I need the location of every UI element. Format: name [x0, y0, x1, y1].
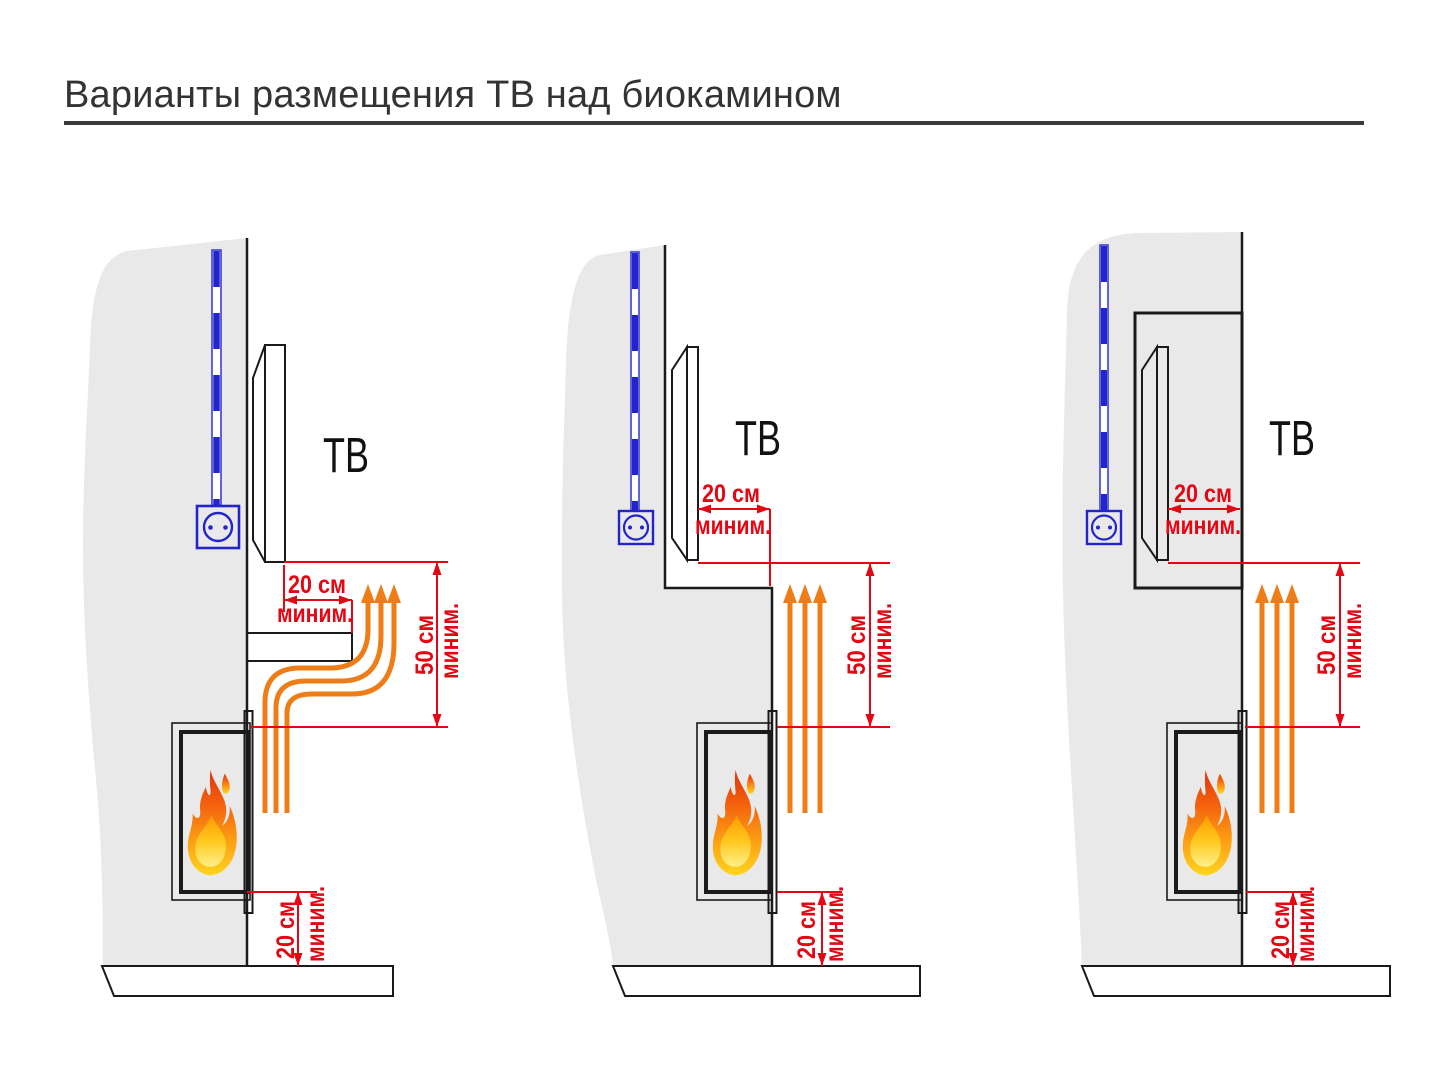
floor-slab [1082, 966, 1390, 996]
heat-clearance-dimension: 50 см миним. [250, 562, 464, 727]
power-cable [212, 250, 221, 506]
power-socket [1087, 511, 1121, 544]
tv-side-view [253, 345, 285, 562]
heat-arrowhead [1270, 584, 1284, 603]
tv-label: ТВ [735, 412, 781, 466]
dimension-qualifier: миним. [1339, 603, 1367, 679]
infographic-page: Варианты размещения ТВ над биокамином [0, 0, 1440, 1080]
power-cable [631, 252, 639, 511]
dimension-qualifier: миним. [821, 886, 849, 962]
socket-pin-hole [1096, 526, 1100, 530]
power-cable [1100, 245, 1108, 511]
arrowhead-up [433, 562, 442, 575]
socket-pin-hole [1108, 526, 1112, 530]
dimension-value: 20 см [1174, 480, 1232, 508]
heat-arrowhead [361, 584, 375, 603]
arrowhead-down [433, 714, 442, 727]
arrowhead-up [1336, 563, 1345, 576]
dimension-value: 20 см [272, 901, 300, 959]
dimension-value: 50 см [1313, 615, 1341, 675]
dimension-qualifier: миним. [277, 600, 353, 628]
heat-arrowhead [1285, 584, 1299, 603]
floor-clearance-dimension: 20 см миним. [777, 886, 849, 966]
dimension-value: 50 см [411, 615, 439, 675]
tv-panel [265, 345, 285, 562]
heat-arrows [783, 584, 827, 813]
socket-pin-hole [208, 525, 213, 530]
tv-label: ТВ [1269, 412, 1315, 466]
tv-clearance-dimension: 20 см миним. [277, 565, 353, 633]
diagram-variant-1-shelf: ТВ [83, 238, 464, 996]
arrowhead-up [866, 563, 875, 576]
placement-diagrams: ТВ [0, 0, 1440, 1080]
heat-arrowhead [813, 584, 827, 603]
socket-pin-hole [223, 525, 228, 530]
dimension-value: 20 см [288, 571, 346, 599]
floor-slab [613, 966, 920, 996]
tv-back [253, 345, 265, 562]
floor-clearance-dimension: 20 см миним. [247, 886, 330, 966]
tv-clearance-dimension: 20 см миним. [1165, 480, 1241, 540]
tv-clearance-dimension: 20 см миним. [695, 480, 771, 586]
tv-back [672, 347, 687, 560]
arrowhead-down [866, 714, 875, 727]
heat-arrowhead [387, 584, 401, 603]
floor-slab [102, 966, 393, 996]
diagram-variant-3-niche: ТВ 20 см [1062, 232, 1390, 996]
dimension-value: 50 см [843, 615, 871, 675]
power-socket [197, 506, 239, 548]
dimension-qualifier: миним. [869, 603, 897, 679]
floor-clearance-dimension: 20 см миним. [1246, 886, 1320, 966]
heat-arrows [1255, 584, 1299, 813]
dimension-qualifier: миним. [1165, 512, 1241, 540]
dimension-qualifier: миним. [695, 512, 771, 540]
heat-arrowhead [783, 584, 797, 603]
tv-label: ТВ [323, 429, 369, 483]
heat-arrowhead [798, 584, 812, 603]
diagram-variant-2-step: ТВ 20 см [562, 245, 920, 996]
socket-pin-hole [640, 526, 644, 530]
arrowhead-down [1336, 714, 1345, 727]
protective-shelf [247, 633, 352, 661]
dimension-qualifier: миним. [436, 603, 464, 679]
dimension-qualifier: миним. [1292, 886, 1320, 962]
heat-arrowhead [374, 584, 388, 603]
dimension-value: 20 см [702, 480, 760, 508]
dimension-value: 20 см [793, 901, 821, 959]
socket-pin-hole [628, 526, 632, 530]
heat-arrowhead [1255, 584, 1269, 603]
power-socket [619, 511, 653, 544]
dimension-qualifier: миним. [302, 886, 330, 962]
dimension-value: 20 см [1267, 901, 1295, 959]
